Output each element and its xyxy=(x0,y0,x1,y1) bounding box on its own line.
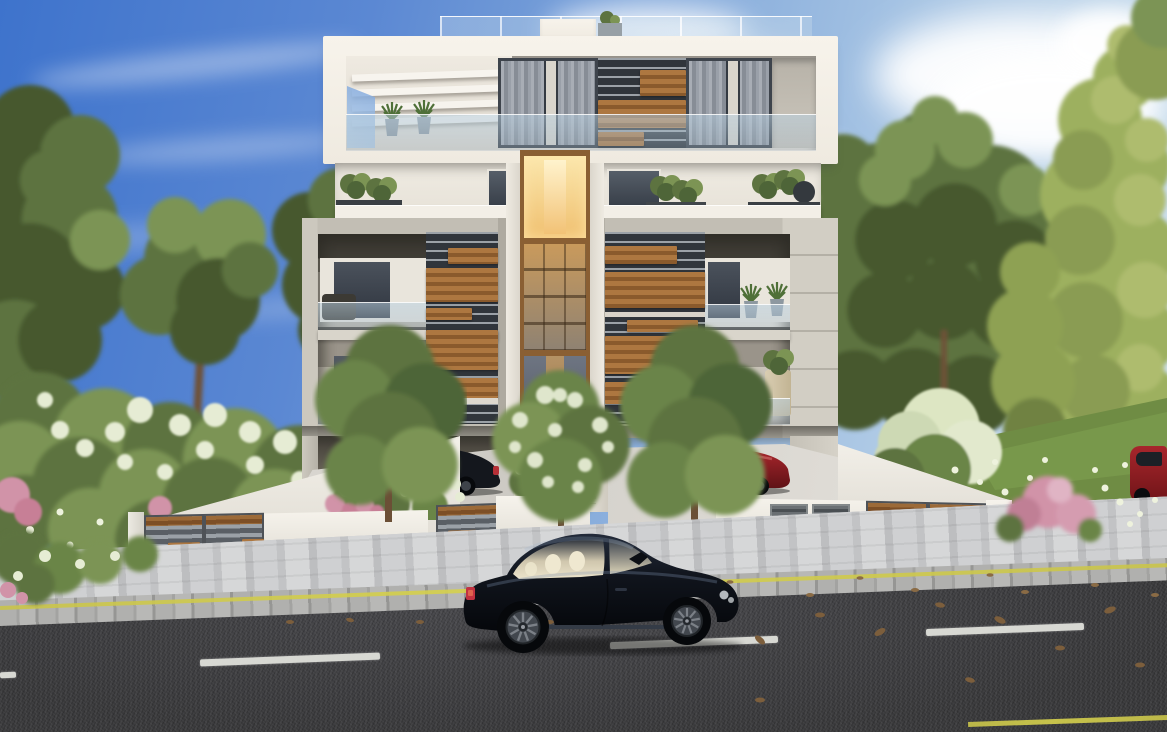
car-headlight xyxy=(720,591,729,600)
front-tree-center-blossom xyxy=(488,352,638,537)
wood-slat-block xyxy=(605,246,677,264)
penthouse-balustrade xyxy=(346,114,816,151)
wood-slat-block xyxy=(426,268,498,302)
front-tree-left xyxy=(312,312,467,524)
bush-overhang-right xyxy=(990,462,1167,562)
car-rear-wheel xyxy=(497,601,549,653)
wood-slat-block xyxy=(448,248,498,264)
black-luxury-coupe xyxy=(455,522,749,662)
wood-slat-block xyxy=(605,272,705,308)
car-headlight xyxy=(728,597,734,603)
car-taillight-inner xyxy=(468,590,473,596)
car-sill xyxy=(545,625,671,629)
bush-overhang-left xyxy=(0,528,190,608)
car-front-wheel xyxy=(663,597,711,645)
pier-joints xyxy=(790,218,838,438)
shaft-mullions xyxy=(524,244,586,350)
architectural-rendering xyxy=(0,0,1167,732)
trees-right xyxy=(795,0,1167,520)
car-door-handle xyxy=(615,588,627,591)
lane-marking xyxy=(0,672,16,679)
shaft-glow-bar xyxy=(544,160,566,234)
wood-slat-block xyxy=(640,70,686,96)
front-tree-right xyxy=(618,308,773,536)
